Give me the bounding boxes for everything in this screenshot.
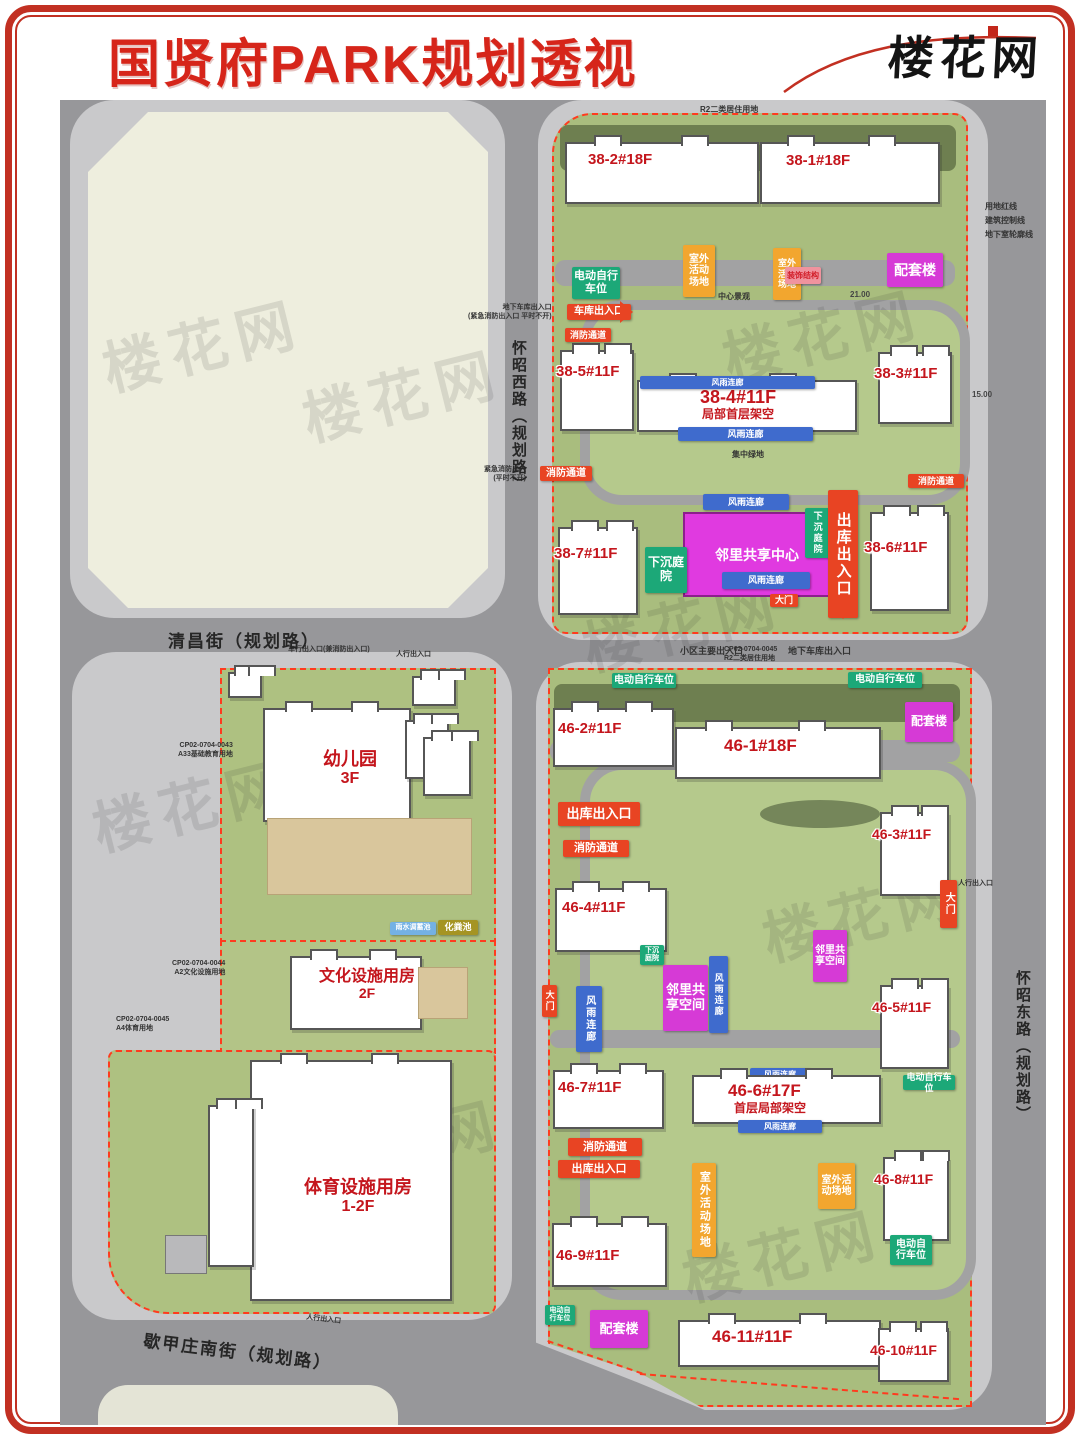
cultural-name: 文化设施用房: [292, 968, 442, 986]
tag-outdoor-activity: 室外活动场地: [818, 1163, 855, 1209]
building-46-8: [883, 1157, 949, 1241]
tag-fire-lane: 消防通道: [563, 840, 629, 857]
building-note-38-4: 局部首层架空: [702, 408, 774, 421]
building-38-3: [878, 352, 952, 424]
tag-ebike-parking: 电动自行车位: [890, 1235, 932, 1265]
building-label-46-11: 46-11#11F: [712, 1328, 792, 1347]
sports-substation: [165, 1235, 207, 1274]
site-plan-map: 楼花网 楼花网 楼花网 楼花网 楼花网 楼花网 楼花网 楼花网 邻里共享中心 3…: [60, 100, 1046, 1425]
tag-fire-lane: 消防通道: [565, 328, 611, 342]
annotation-cp45: CP02-0704-0045: [724, 646, 777, 655]
tag-neighbor-space: 邻里共享空间: [813, 930, 847, 982]
sports-floors: 1-2F: [278, 1198, 438, 1216]
building-label-38-6: 38-6#11F: [864, 540, 927, 557]
kindergarten-floors: 3F: [295, 770, 405, 788]
building-note-46-6: 首层局部架空: [734, 1102, 806, 1115]
tag-rain-corridor: 风雨连廊: [576, 986, 602, 1052]
building-label-38-3: 38-3#11F: [874, 366, 937, 383]
annotation-central-green: 集中绿地: [732, 450, 764, 460]
tag-exit-entrance: 出库出入口: [558, 1160, 640, 1178]
tag-sunken-courtyard: 下沉庭院: [645, 547, 687, 593]
facility-label-kindergarten: 幼儿园 3F: [295, 750, 405, 787]
tag-outdoor-activity: 室外活动场地: [692, 1163, 716, 1257]
tag-decor-structure: 装饰结构: [785, 267, 821, 284]
tag-neighbor-space: 邻里共享空间: [663, 965, 708, 1031]
street-huaizhao-east: 怀昭东路（规划路）: [1012, 970, 1033, 1123]
building-38-7: [558, 527, 638, 615]
annotation-parcel-a4: CP02-0704-0045 A4体育用地: [116, 1016, 169, 1034]
facility-label-cultural: 文化设施用房 2F: [292, 968, 442, 1001]
street-huaizhao-west: 怀昭西路（规划路）: [508, 340, 529, 493]
building-kindergarten-wing: [423, 737, 471, 796]
kindergarten-name: 幼儿园: [295, 750, 405, 770]
building-label-46-1: 46-1#18F: [724, 737, 797, 756]
tag-rain-corridor: 风雨连廊: [678, 427, 813, 441]
street-xiejiazhuang-south: 歇甲庄南街（规划路）: [142, 1327, 334, 1375]
building-label-46-7: 46-7#11F: [558, 1080, 621, 1097]
building-label-46-10: 46-10#11F: [870, 1343, 937, 1358]
building-label-46-6: 46-6#17F: [728, 1082, 801, 1101]
building-kindergarten-annex: [412, 676, 456, 706]
tag-gate: 大门: [542, 985, 557, 1017]
building-label-46-3: 46-3#11F: [872, 827, 931, 842]
building-label-46-2: 46-2#11F: [558, 721, 621, 738]
tag-support-building: 配套楼: [590, 1310, 648, 1348]
tag-support-building: 配套楼: [887, 253, 943, 287]
annotation-ug-garage: 地下车库出入口 (紧急消防出入口 平时不开): [468, 304, 552, 322]
tag-rain-corridor: 风雨连廊: [703, 494, 789, 510]
building-label-38-5: 38-5#11F: [556, 364, 619, 381]
building-label-46-9: 46-9#11F: [556, 1248, 619, 1265]
annotation-ped-entrance: 人行出入口: [396, 651, 431, 660]
building-sports-annex: [208, 1105, 254, 1267]
tag-rain-corridor: 风雨连廊: [738, 1120, 822, 1133]
annotation-ug-garage-line1: 地下车库出入口: [468, 304, 552, 313]
annotation-red-line: 用地红线: [985, 202, 1017, 212]
tag-fire-lane: 消防通道: [540, 466, 592, 481]
annotation-parcel-a2: CP02-0704-0044 A2文化设施用地: [172, 960, 225, 978]
site-logo: 楼花网: [886, 22, 1045, 88]
sports-name: 体育设施用房: [278, 1178, 438, 1198]
tree-cluster: [760, 800, 880, 828]
annotation-a2: A2文化设施用地: [172, 969, 225, 978]
annotation-a33: A33基础教育用地: [178, 751, 233, 760]
annotation-cp45b: CP02-0704-0045: [116, 1016, 169, 1025]
annotation-r2-use: R2二类居住用地: [700, 105, 758, 115]
tag-sunken-courtyard: 下沉庭院: [805, 508, 830, 558]
building-38-6: [870, 512, 949, 611]
annotation-basement-line: 地下室轮廓线: [985, 230, 1033, 240]
annotation-ug-garage-south: 地下车库出入口: [788, 646, 851, 657]
building-label-38-2: 38-2#18F: [588, 152, 652, 169]
page-title: 国贤府PARK规划透视: [108, 22, 637, 97]
tag-gate: 大门: [770, 594, 798, 607]
tag-outdoor-activity: 室外活动场地: [683, 245, 715, 297]
tag-ebike-parking: 电动自行车位: [848, 672, 922, 688]
building-label-38-4: 38-4#11F: [700, 388, 776, 408]
annotation-cp44: CP02-0704-0044: [172, 960, 225, 969]
page: 国贤府PARK规划透视 楼花网 楼花网 楼花网 楼花网 楼花: [0, 0, 1080, 1439]
facility-label-sports: 体育设施用房 1-2F: [278, 1178, 438, 1215]
building-46-4: [555, 888, 667, 952]
building-46-5: [880, 985, 949, 1069]
tag-rain-corridor: 风雨连廊: [640, 376, 815, 389]
parcel-vacant-northwest: [88, 112, 488, 608]
logo-seal-icon: [988, 26, 998, 36]
tag-ebike-parking: 电动自行车位: [612, 673, 676, 688]
annotation-a4: A4体育用地: [116, 1025, 169, 1034]
building-label-46-5: 46-5#11F: [872, 1000, 931, 1015]
tag-sunken-courtyard: 下沉庭院: [640, 945, 664, 965]
building-label-38-7: 38-7#11F: [554, 546, 617, 563]
tag-gate: 大门: [940, 880, 957, 928]
building-label-46-8: 46-8#11F: [874, 1172, 933, 1187]
tag-fire-lane: 消防通道: [908, 474, 964, 488]
tag-ebike-parking: 电动自行车位: [545, 1305, 575, 1325]
annotation-dim-21: 21.00: [850, 290, 870, 300]
cultural-floors: 2F: [292, 986, 442, 1001]
annotation-control-line: 建筑控制线: [985, 216, 1025, 226]
neighbor-center-label: 邻里共享中心: [715, 545, 799, 565]
building-label-38-1: 38-1#18F: [786, 153, 850, 170]
tag-rain-corridor: 风雨连廊: [709, 956, 728, 1033]
annotation-cp43: CP02-0704-0043: [178, 742, 233, 751]
building-gatehouse: [228, 672, 262, 698]
tag-exit-entrance: 出库出入口: [828, 490, 858, 618]
tag-ebike-parking: 电动自行车位: [572, 267, 620, 299]
annotation-parcel-code: CP02-0704-0045 R2二类居住用地: [724, 646, 777, 664]
annotation-ped-entrance: 人行出入口: [958, 880, 993, 889]
annotation-r2: R2二类居住用地: [724, 655, 777, 664]
tag-fire-lane: 消防通道: [568, 1138, 642, 1156]
sidewalk-bottom-corner: [98, 1385, 398, 1425]
kindergarten-playground: [267, 818, 472, 895]
tag-support-building: 配套楼: [905, 702, 953, 742]
building-46-2: [553, 708, 674, 767]
annotation-ug-garage-line2: (紧急消防出入口 平时不开): [468, 313, 552, 322]
tag-septic-tank: 化粪池: [438, 920, 478, 935]
tag-exit-entrance: 出库出入口: [558, 802, 640, 826]
tag-rain-tank: 雨水调蓄池: [390, 922, 436, 935]
building-label-46-4: 46-4#11F: [562, 900, 625, 917]
tag-rain-corridor: 风雨连廊: [722, 572, 810, 589]
building-46-3: [880, 812, 949, 896]
annotation-dim-15: 15.00: [972, 390, 992, 400]
tag-garage-entrance: 车库出入口: [567, 304, 631, 320]
annotation-central-landscape: 中心景观: [718, 292, 750, 302]
street-qingchang: 清昌街（规划路）: [168, 627, 320, 652]
tag-ebike-parking: 电动自行车位: [903, 1075, 955, 1090]
annotation-parcel-a33: CP02-0704-0043 A33基础教育用地: [178, 742, 233, 760]
